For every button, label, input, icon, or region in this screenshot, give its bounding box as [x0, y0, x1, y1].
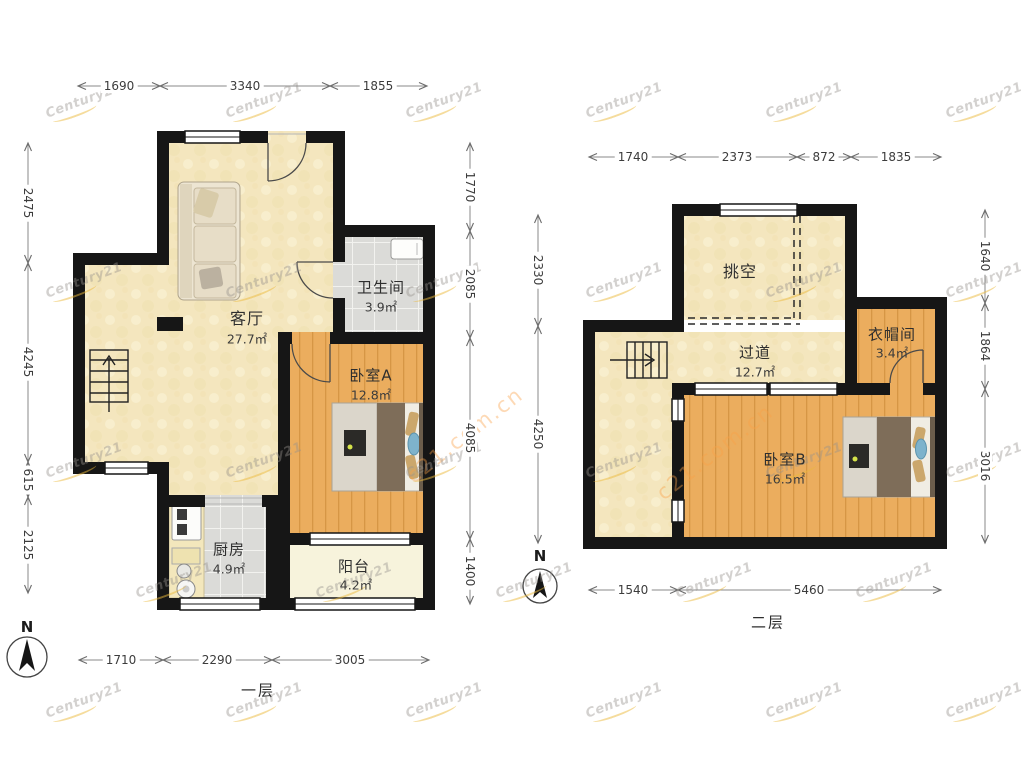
- dim-f1-right-3: 1400: [463, 553, 477, 590]
- room-area-hallway: 12.7㎡: [735, 362, 775, 381]
- dim-f1-left-0: 2475: [21, 185, 35, 222]
- room-label-cloakroom: 衣帽间: [868, 324, 916, 345]
- dim-f1-top-1: 3340: [227, 79, 264, 93]
- dim-f2-top-3: 1835: [878, 150, 915, 164]
- room-area-cloakroom: 3.4㎡: [876, 343, 908, 362]
- dim-f2-top-2: 872: [810, 150, 839, 164]
- room-label-bedroomA: 卧室A: [349, 365, 392, 386]
- dim-f1-left-3: 2125: [21, 527, 35, 564]
- dim-f1-bottom-2: 3005: [332, 653, 369, 667]
- bed-a: [332, 403, 423, 491]
- dim-f1-right-1: 2085: [463, 266, 477, 303]
- room-area-kitchen: 4.9㎡: [213, 559, 245, 578]
- dim-f2-left-1: 4250: [531, 416, 545, 453]
- dim-f2-top-0: 1740: [615, 150, 652, 164]
- room-area-bedroomA: 12.8㎡: [351, 385, 391, 404]
- bed-b: [843, 417, 935, 497]
- room-label-void: 挑空: [723, 258, 757, 282]
- dim-f2-bottom-1: 5460: [791, 583, 828, 597]
- dim-f2-right-1: 1864: [978, 328, 992, 365]
- room-area-bedroomB: 16.5㎡: [765, 469, 805, 488]
- compass-n-floor2: N: [534, 547, 547, 565]
- room-area-bath: 3.9㎡: [365, 297, 397, 316]
- room-label-bath: 卫生间: [357, 277, 405, 298]
- kitchen-counter: [169, 500, 204, 598]
- dim-f1-left-1: 4245: [21, 344, 35, 381]
- dim-f1-left-2: 615: [21, 466, 35, 495]
- sofa: [178, 182, 240, 300]
- compass-floor2: [523, 569, 557, 603]
- room-label-bedroomB: 卧室B: [763, 449, 806, 470]
- dim-f1-right-0: 1770: [463, 169, 477, 206]
- bathroom-basin: [391, 239, 423, 259]
- dim-f2-bottom-0: 1540: [615, 583, 652, 597]
- dim-f2-right-0: 1640: [978, 238, 992, 275]
- room-area-living: 27.7㎡: [227, 329, 267, 348]
- compass-n-floor1: N: [21, 618, 34, 636]
- dim-f2-top-1: 2373: [719, 150, 756, 164]
- room-label-kitchen: 厨房: [213, 539, 245, 560]
- dim-f1-top-2: 1855: [360, 79, 397, 93]
- floor1-caption: 一层: [241, 680, 275, 701]
- dim-f1-top-0: 1690: [101, 79, 138, 93]
- room-label-living: 客厅: [230, 305, 264, 329]
- floorplan-canvas: 1690 3340 1855 2475 4245 615 2125 1770 2…: [0, 0, 1024, 768]
- room-label-hallway: 过道: [739, 342, 771, 363]
- compass-floor1: [7, 637, 47, 677]
- dim-f2-left-0: 2330: [531, 252, 545, 289]
- room-area-balcony: 4.2㎡: [340, 575, 372, 594]
- dim-f1-bottom-1: 2290: [199, 653, 236, 667]
- floorplan-drawing: [0, 0, 1024, 768]
- room-label-balcony: 阳台: [338, 556, 370, 577]
- dim-f1-bottom-0: 1710: [103, 653, 140, 667]
- floor2-caption: 二层: [751, 612, 785, 633]
- dim-f2-right-2: 3016: [978, 448, 992, 485]
- dim-f1-right-2: 4085: [463, 420, 477, 457]
